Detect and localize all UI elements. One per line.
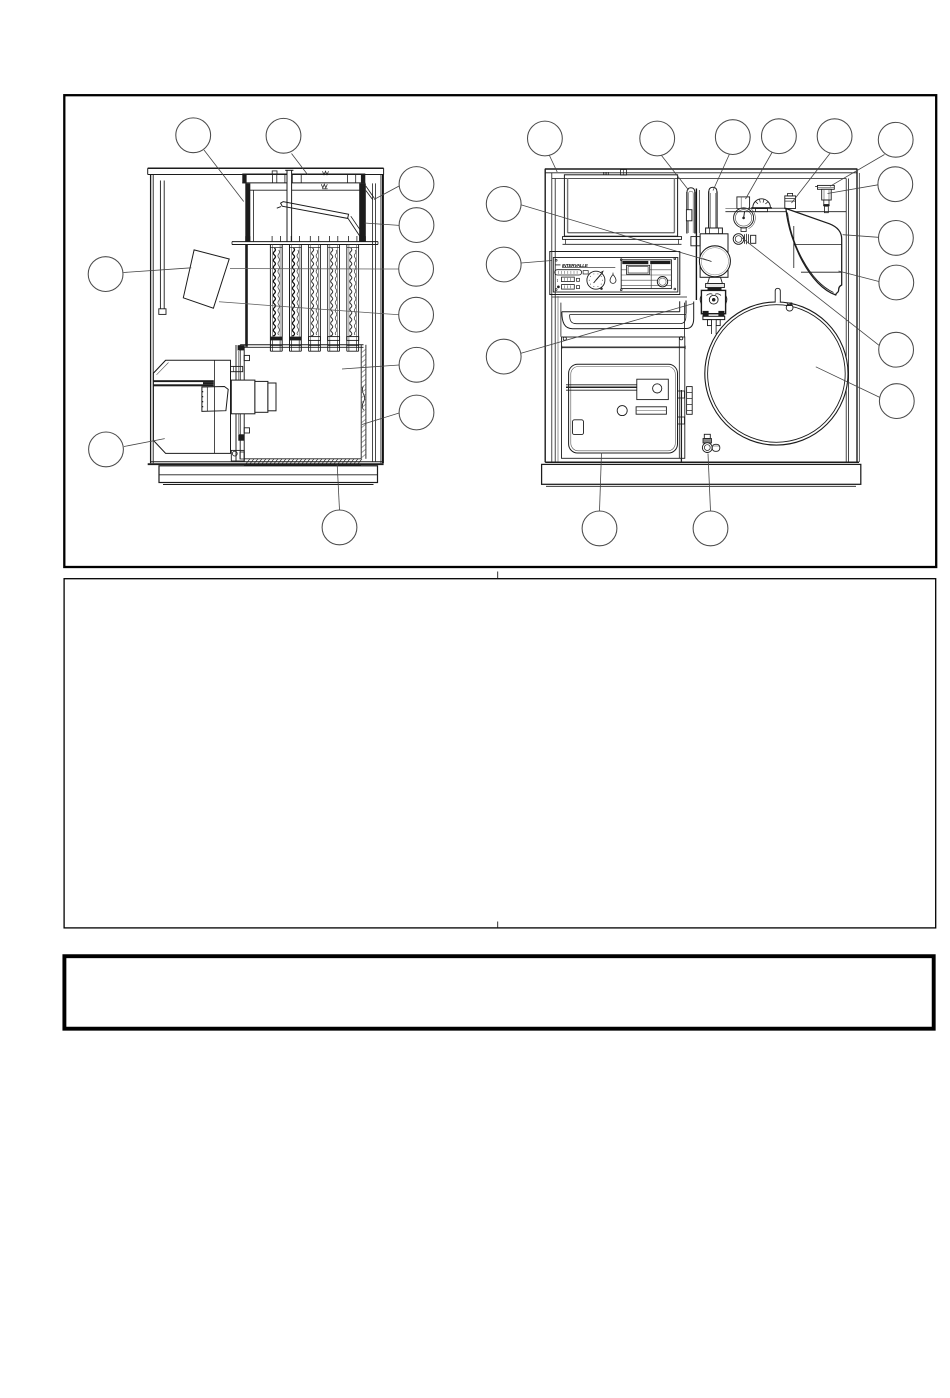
svg-text:INTERVALLE: INTERVALLE — [562, 263, 589, 268]
